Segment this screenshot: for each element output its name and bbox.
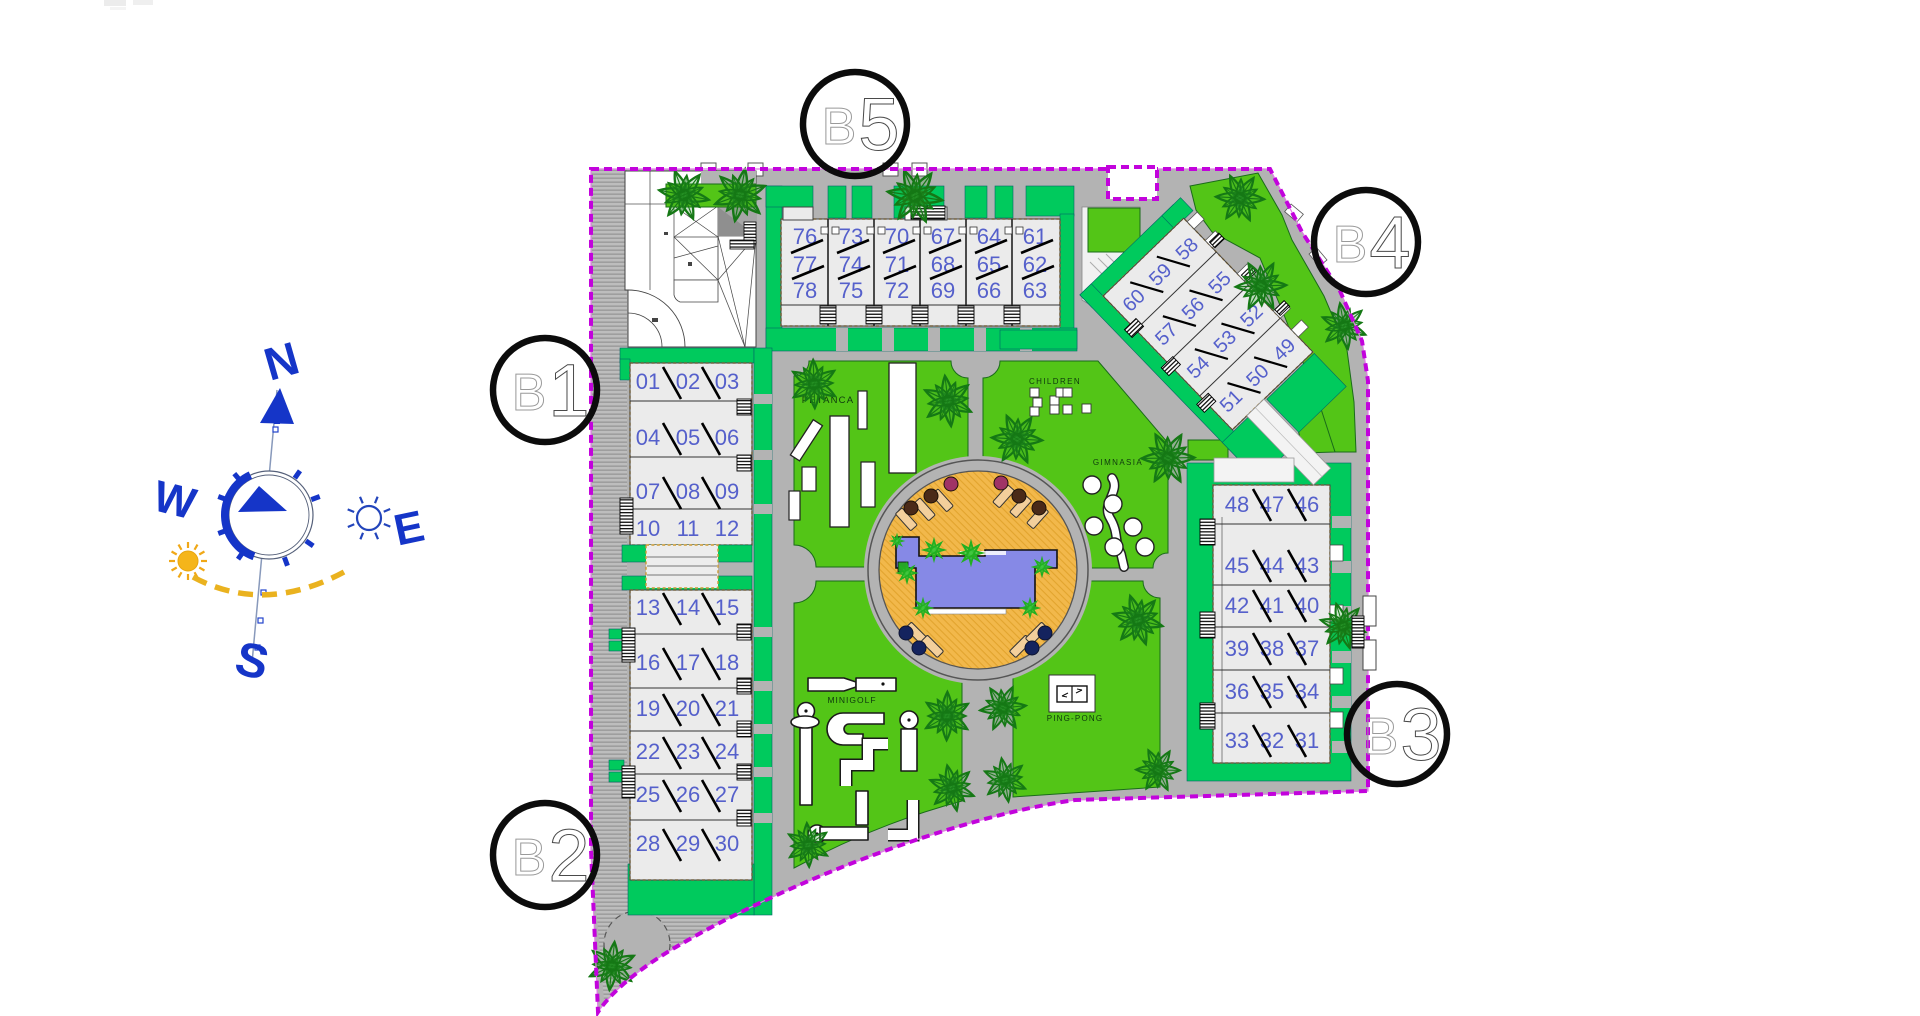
svg-text:13: 13 bbox=[636, 595, 660, 620]
svg-text:24: 24 bbox=[715, 739, 739, 764]
svg-text:61: 61 bbox=[1023, 224, 1047, 249]
svg-text:09: 09 bbox=[715, 479, 739, 504]
svg-text:38: 38 bbox=[1260, 636, 1284, 661]
svg-text:B: B bbox=[512, 364, 547, 422]
svg-text:15: 15 bbox=[715, 595, 739, 620]
svg-text:20: 20 bbox=[676, 696, 700, 721]
svg-text:14: 14 bbox=[676, 595, 700, 620]
svg-text:B: B bbox=[512, 829, 547, 887]
svg-text:73: 73 bbox=[839, 224, 863, 249]
svg-text:5: 5 bbox=[858, 83, 899, 166]
svg-text:33: 33 bbox=[1225, 728, 1249, 753]
svg-text:72: 72 bbox=[885, 278, 909, 303]
svg-text:01: 01 bbox=[636, 369, 660, 394]
svg-text:66: 66 bbox=[977, 278, 1001, 303]
svg-text:34: 34 bbox=[1295, 679, 1319, 704]
svg-text:70: 70 bbox=[885, 224, 909, 249]
svg-text:48: 48 bbox=[1225, 492, 1249, 517]
svg-text:78: 78 bbox=[793, 278, 817, 303]
svg-text:1: 1 bbox=[548, 349, 589, 432]
svg-text:18: 18 bbox=[715, 650, 739, 675]
svg-text:PING-PONG: PING-PONG bbox=[1047, 714, 1104, 723]
svg-text:4: 4 bbox=[1369, 201, 1410, 284]
svg-text:39: 39 bbox=[1225, 636, 1249, 661]
svg-text:B: B bbox=[1333, 216, 1368, 274]
svg-text:26: 26 bbox=[676, 782, 700, 807]
svg-text:B: B bbox=[1364, 708, 1399, 766]
svg-text:40: 40 bbox=[1295, 593, 1319, 618]
svg-text:17: 17 bbox=[676, 650, 700, 675]
svg-text:75: 75 bbox=[839, 278, 863, 303]
svg-text:03: 03 bbox=[715, 369, 739, 394]
svg-text:29: 29 bbox=[676, 831, 700, 856]
svg-text:B: B bbox=[822, 98, 857, 156]
svg-text:CHILDREN: CHILDREN bbox=[1029, 377, 1081, 386]
svg-text:06: 06 bbox=[715, 425, 739, 450]
svg-text:69: 69 bbox=[931, 278, 955, 303]
svg-text:08: 08 bbox=[676, 479, 700, 504]
svg-text:10: 10 bbox=[636, 516, 660, 541]
svg-text:47: 47 bbox=[1260, 492, 1284, 517]
svg-text:12: 12 bbox=[715, 516, 739, 541]
svg-text:16: 16 bbox=[636, 650, 660, 675]
svg-text:76: 76 bbox=[793, 224, 817, 249]
svg-text:02: 02 bbox=[676, 369, 700, 394]
svg-text:30: 30 bbox=[715, 831, 739, 856]
svg-text:25: 25 bbox=[636, 782, 660, 807]
svg-text:22: 22 bbox=[636, 739, 660, 764]
svg-text:63: 63 bbox=[1023, 278, 1047, 303]
svg-text:28: 28 bbox=[636, 831, 660, 856]
svg-text:27: 27 bbox=[715, 782, 739, 807]
svg-text:04: 04 bbox=[636, 425, 660, 450]
svg-text:11: 11 bbox=[677, 516, 700, 541]
svg-text:GIMNASIA: GIMNASIA bbox=[1093, 458, 1143, 467]
svg-text:45: 45 bbox=[1225, 553, 1249, 578]
svg-text:MINIGOLF: MINIGOLF bbox=[827, 695, 876, 705]
svg-text:46: 46 bbox=[1295, 492, 1319, 517]
svg-text:35: 35 bbox=[1260, 679, 1284, 704]
svg-text:21: 21 bbox=[715, 696, 739, 721]
svg-text:64: 64 bbox=[977, 224, 1001, 249]
svg-text:42: 42 bbox=[1225, 593, 1249, 618]
svg-text:19: 19 bbox=[636, 696, 660, 721]
svg-text:36: 36 bbox=[1225, 679, 1249, 704]
svg-text:05: 05 bbox=[676, 425, 700, 450]
svg-text:32: 32 bbox=[1260, 728, 1284, 753]
svg-text:3: 3 bbox=[1400, 693, 1441, 776]
svg-text:23: 23 bbox=[676, 739, 700, 764]
svg-text:07: 07 bbox=[636, 479, 660, 504]
svg-text:67: 67 bbox=[931, 224, 955, 249]
svg-text:2: 2 bbox=[548, 814, 589, 897]
svg-text:31: 31 bbox=[1295, 728, 1319, 753]
svg-text:41: 41 bbox=[1260, 593, 1284, 618]
svg-text:37: 37 bbox=[1295, 636, 1319, 661]
svg-text:43: 43 bbox=[1295, 553, 1319, 578]
svg-text:44: 44 bbox=[1260, 553, 1284, 578]
